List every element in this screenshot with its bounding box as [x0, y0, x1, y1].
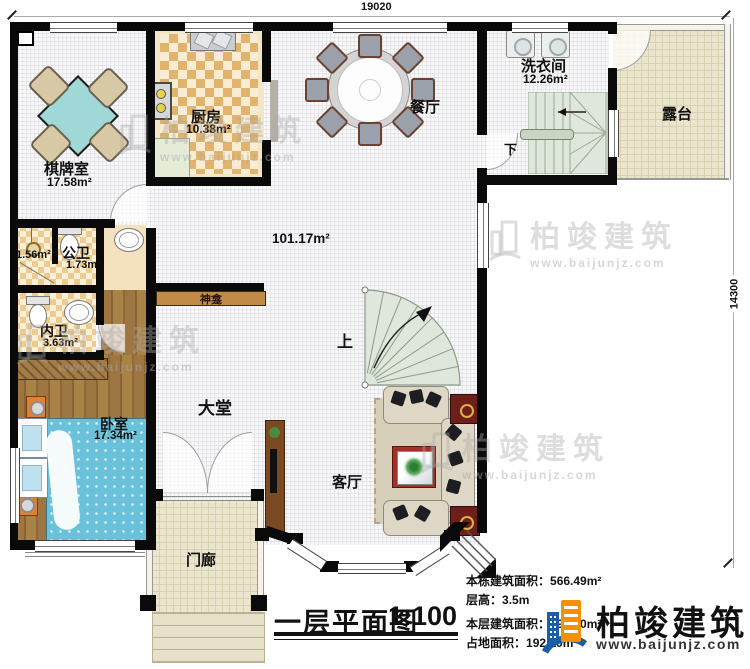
brand-website: www.baijunjz.com [596, 636, 741, 652]
wall-stair-room [477, 28, 487, 135]
terrace-railing [724, 24, 731, 180]
wall [10, 540, 35, 550]
brand-logo [537, 594, 591, 663]
side-table [450, 394, 480, 424]
nightstand-top [22, 465, 42, 491]
dim-tick-top-left [7, 10, 17, 20]
shrine-shelf: 神龛 [156, 291, 266, 306]
wall-hall-east [477, 268, 487, 533]
room-area-laundry: 12.26m² [523, 72, 568, 86]
wall [608, 157, 617, 185]
window [50, 22, 117, 33]
nightstand [16, 418, 48, 458]
pillow [409, 389, 424, 404]
room-label-porch: 门廊 [186, 549, 216, 570]
porch-rail [257, 501, 264, 595]
window [10, 448, 20, 523]
tv [270, 449, 277, 493]
bay-window-bottom [338, 563, 406, 574]
dim-line-top [14, 16, 730, 17]
kitchen-counter [154, 138, 190, 180]
room-label-terrace: 露台 [662, 103, 692, 124]
porch-steps [152, 612, 265, 663]
watermark: 柏竣建筑 www.baijunjz.com [488, 212, 678, 270]
total-area-value: 566.49m² [550, 574, 601, 588]
watermark-site: www.baijunjz.com [530, 256, 678, 270]
wall-kitchen-bottom [146, 177, 270, 186]
plan-scale: 1:100 [388, 601, 457, 632]
corridor-sink [114, 228, 144, 252]
dim-tick-bottom-right [723, 558, 733, 568]
nightstand-top [22, 425, 42, 451]
window [35, 540, 135, 552]
room-label-lobby: 大堂 [198, 394, 232, 419]
column-notch [17, 31, 34, 46]
wall [96, 285, 104, 325]
burner [156, 89, 166, 99]
coffee-table [392, 446, 436, 488]
total-area-label: 本栋建筑面积： [466, 574, 550, 588]
stairs-up-label: 上 [337, 328, 353, 352]
porch-pillar [140, 595, 156, 611]
washing-machine [506, 30, 535, 58]
brand-logo-icon [537, 594, 591, 658]
dim-top-label: 19020 [358, 1, 395, 13]
wall [135, 540, 156, 550]
window [185, 22, 253, 33]
window-sill [25, 552, 145, 558]
wall-laundry-east [608, 22, 617, 34]
room-area-bedroom: 17.34m² [94, 430, 137, 442]
floor-height-value: 3.5m [502, 593, 529, 607]
stairs-up [332, 272, 482, 390]
floor-plan-canvas: 19020 14300 神龛 [0, 0, 750, 669]
wall-bath-right [96, 222, 104, 292]
terrace-edge [613, 178, 729, 180]
title-underline-thick [274, 632, 458, 636]
wall-bath-bottom [10, 352, 104, 360]
window [608, 110, 619, 157]
wall-fan [26, 396, 46, 418]
watermark-logo-icon [488, 220, 522, 262]
burner [156, 103, 166, 113]
stairs-down-label: 下 [504, 139, 517, 158]
footprint-label: 占地面积： [466, 636, 526, 650]
nightstand [16, 458, 48, 498]
room-area-kitchen: 10.38m² [186, 122, 231, 136]
shower-hose [31, 228, 32, 243]
room-label-living: 客厅 [332, 471, 362, 492]
room-area-shower: 1.56m² [16, 249, 51, 261]
title-underline-thin [274, 639, 458, 640]
wall-left [10, 22, 18, 448]
wall [477, 168, 487, 203]
kitchen-opening-shadow [270, 80, 278, 142]
watermark-name: 柏竣建筑 [530, 212, 678, 256]
table-center [359, 79, 381, 101]
wall-bath-divider [52, 222, 58, 264]
door-sill [163, 492, 251, 501]
chair [305, 78, 329, 102]
washing-machine [541, 30, 570, 58]
window [512, 22, 568, 33]
wall-kitchen-right [262, 140, 271, 186]
wardrobe [14, 358, 108, 380]
plant [269, 427, 280, 438]
door-post [251, 489, 264, 501]
bath-sink [64, 300, 94, 325]
wall-kitchen-divider [146, 22, 155, 180]
stair-handrail [520, 129, 574, 140]
chair [358, 34, 382, 58]
room-label-dining: 餐厅 [410, 96, 440, 117]
hall-area-label: 101.17m² [272, 231, 330, 246]
chair [358, 122, 382, 146]
porch-pillar [251, 595, 267, 611]
dim-tick-top-right [721, 10, 731, 20]
window [333, 22, 447, 33]
shrine-label: 神龛 [200, 291, 222, 307]
window [477, 203, 489, 268]
tv-cabinet [265, 420, 285, 534]
floor-height-label: 层高： [466, 593, 502, 607]
plant [406, 459, 422, 475]
room-area-chess: 17.58m² [47, 175, 92, 189]
wall-kitchen-right [262, 22, 271, 82]
room-area-private-bath: 3.63m² [43, 337, 78, 349]
room-area-public-bath: 1.73m² [66, 259, 101, 271]
door-post [150, 489, 163, 501]
wall-bath-mid [10, 285, 104, 293]
wall [608, 68, 617, 110]
dim-right-label: 14300 [728, 276, 740, 313]
wall-stair-room-bottom [480, 175, 617, 185]
